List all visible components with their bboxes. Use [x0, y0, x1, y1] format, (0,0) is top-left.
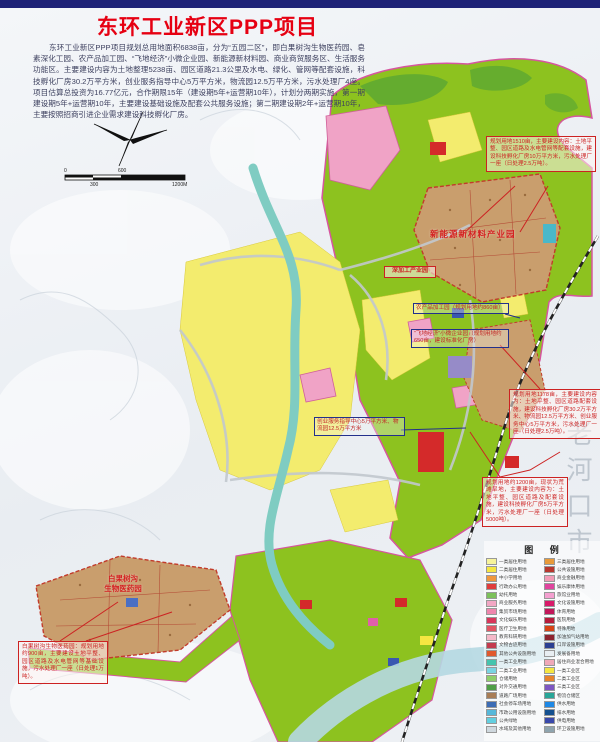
legend-item: 文化设施用地	[544, 600, 599, 607]
annotation-right-mid: 规划用地1178亩，主要建设内容为：土地平整、园区道路配套设施，建设科技孵化厂房…	[509, 389, 600, 439]
legend-item: 水域及其他用地	[486, 726, 541, 733]
legend-label: 三类工业区	[557, 684, 580, 690]
legend-label: 水域及其他用地	[499, 726, 531, 732]
legend-column-left: 一类居住用地二类居住用地中小学用地行政办公用地幼托用地商业服务用地集贸市场用地文…	[486, 558, 541, 733]
legend-swatch	[486, 659, 497, 666]
annotation-bottom-left: 白果树沟生物医药园：规划用地约900亩，主要建设土地平整、园区道路及水电管网等基…	[18, 641, 108, 684]
legend-swatch	[544, 558, 555, 565]
legend-swatch	[486, 667, 497, 674]
legend-item: 集贸市场用地	[486, 608, 541, 615]
legend-item: 排水用地	[544, 709, 599, 716]
label-processing-park: 深加工产业园	[384, 266, 436, 278]
label-new-material-park: 新能源新材料产业园	[430, 228, 550, 240]
legend-label: 二类居住用地	[499, 567, 527, 573]
scale-label-600: 600	[118, 168, 126, 174]
label-biopharma-line1: 白果树沟	[78, 574, 168, 584]
legend-swatch	[486, 608, 497, 615]
legend-swatch	[544, 642, 555, 649]
legend-swatch	[544, 692, 555, 699]
legend-label: 供电用地	[557, 718, 575, 724]
legend-label: 其他公共设施用地	[499, 651, 536, 657]
legend-label: 幼托用地	[499, 592, 517, 598]
legend-label: 一类工业区	[557, 668, 580, 674]
legend-label: 一类工业用地	[499, 659, 527, 665]
legend-item: 教育科研用地	[486, 634, 541, 641]
legend-label: 发展备用地	[557, 651, 580, 657]
legend-label: 加油加气站用地	[557, 634, 589, 640]
top-border-bar	[0, 0, 600, 8]
legend-swatch	[544, 592, 555, 599]
legend-swatch	[486, 726, 497, 733]
legend-swatch	[544, 566, 555, 573]
legend-label: 道路广场用地	[499, 693, 527, 699]
legend-label: 环卫设施用地	[557, 726, 585, 732]
legend-item: 商业服务用地	[486, 600, 541, 607]
legend-label: 商业金融用地	[557, 575, 585, 581]
legend-swatch	[486, 634, 497, 641]
label-biopharma-park: 白果树沟 生物医药园	[78, 574, 168, 594]
legend-swatch	[486, 701, 497, 708]
legend-swatch	[544, 709, 555, 716]
annotation-right-low: 规划用地约1200亩，现状为荒滩旱地，主要建设内容为：土地平整、园区道路及配套设…	[482, 477, 568, 527]
annotation-blue-service-center: 创业服务指导中心5万平方米、物流园12.5万平方米	[314, 417, 405, 436]
legend-label: 居住商业混合用地	[557, 659, 594, 665]
legend-label: 物流仓储区	[557, 693, 580, 699]
legend-label: 对外交通用地	[499, 684, 527, 690]
annotation-top-right: 规划用地1510亩，主要建设内容：土地平整、园区道路及水电管网等配套设施，建设科…	[486, 136, 596, 172]
legend-swatch	[486, 566, 497, 573]
legend-swatch	[486, 709, 497, 716]
legend-swatch	[486, 675, 497, 682]
legend-swatch	[544, 701, 555, 708]
label-biopharma-line2: 生物医药园	[78, 584, 168, 594]
legend-swatch	[544, 575, 555, 582]
scale-label-0: 0	[64, 168, 67, 174]
legend-item: 环卫设施用地	[544, 726, 599, 733]
legend-swatch	[544, 625, 555, 632]
legend-title: 图 例	[490, 543, 600, 556]
scale-label-300: 300	[90, 182, 98, 188]
legend-item: 一类工业区	[544, 667, 599, 674]
legend-swatch	[486, 625, 497, 632]
legend-item: 文化娱乐用地	[486, 617, 541, 624]
legend-label: 教育科研用地	[499, 634, 527, 640]
legend-label: 文物古迹用地	[499, 642, 527, 648]
legend-item: 道路广场用地	[486, 692, 541, 699]
legend-swatch	[486, 558, 497, 565]
legend-item: 公共绿地	[486, 717, 541, 724]
legend-item: 对外交通用地	[486, 684, 541, 691]
map-legend: 图 例 一类居住用地二类居住用地中小学用地行政办公用地幼托用地商业服务用地集贸市…	[484, 541, 600, 741]
scale-label-1200m: 1200M	[172, 182, 187, 188]
annotation-blue-sme-park: “飞地经济”小微企业园（规划用地约650亩，建设标准化厂房）	[411, 329, 509, 348]
legend-label: 二类工业区	[557, 676, 580, 682]
legend-label: 文化娱乐用地	[499, 617, 527, 623]
legend-item: 仓储用地	[486, 675, 541, 682]
map-page: 东环工业新区PPP项目 东环工业新区PPP项目规划总用地面积6838亩，分为“五…	[0, 0, 600, 742]
legend-swatch	[544, 608, 555, 615]
legend-swatch	[486, 684, 497, 691]
intro-paragraph: 东环工业新区PPP项目规划总用地面积6838亩，分为“五园二区”，即白果树沟生物…	[33, 42, 365, 121]
legend-columns: 一类居住用地二类居住用地中小学用地行政办公用地幼托用地商业服务用地集贸市场用地文…	[486, 558, 600, 733]
legend-label: 娱乐康体用地	[557, 584, 585, 590]
legend-item: 体育用地	[544, 608, 599, 615]
legend-label: 医疗卫生用地	[499, 626, 527, 632]
legend-item: 三类居住用地	[544, 558, 599, 565]
legend-swatch	[486, 600, 497, 607]
legend-item: 行政办公用地	[486, 583, 541, 590]
legend-swatch	[544, 684, 555, 691]
legend-item: 商业金融用地	[544, 575, 599, 582]
legend-item: 物流仓储区	[544, 692, 599, 699]
legend-item: 居住商业混合用地	[544, 659, 599, 666]
legend-swatch	[544, 583, 555, 590]
legend-item: 口岸设施用地	[544, 642, 599, 649]
legend-swatch	[486, 575, 497, 582]
legend-item: 加油加气站用地	[544, 634, 599, 641]
annotation-blue-agri-park: 农产品加工园（规划用地约860亩）	[413, 303, 509, 314]
legend-label: 体育用地	[557, 609, 575, 615]
legend-swatch	[486, 692, 497, 699]
legend-swatch	[544, 617, 555, 624]
legend-item: 娱乐康体用地	[544, 583, 599, 590]
legend-item: 医疗卫生用地	[486, 625, 541, 632]
legend-label: 集贸市场用地	[499, 609, 527, 615]
legend-item: 文物古迹用地	[486, 642, 541, 649]
legend-label: 社会停车场用地	[499, 701, 531, 707]
legend-item: 医院用地	[544, 617, 599, 624]
legend-label: 特殊用地	[557, 626, 575, 632]
legend-item: 二类居住用地	[486, 566, 541, 573]
legend-label: 文化设施用地	[557, 600, 585, 606]
legend-column-right: 三类居住用地公共设施用地商业金融用地娱乐康体用地旅馆业用地文化设施用地体育用地医…	[544, 558, 599, 733]
legend-label: 市政公用设施用地	[499, 710, 536, 716]
legend-label: 旅馆业用地	[557, 592, 580, 598]
legend-item: 一类居住用地	[486, 558, 541, 565]
legend-item: 一类工业用地	[486, 659, 541, 666]
legend-swatch	[544, 717, 555, 724]
legend-label: 二类工业用地	[499, 668, 527, 674]
legend-swatch	[486, 642, 497, 649]
legend-label: 商业服务用地	[499, 600, 527, 606]
legend-label: 公共设施用地	[557, 567, 585, 573]
legend-item: 二类工业用地	[486, 667, 541, 674]
legend-swatch	[544, 634, 555, 641]
scale-bar	[65, 175, 185, 180]
legend-item: 发展备用地	[544, 650, 599, 657]
legend-label: 仓储用地	[499, 676, 517, 682]
legend-label: 排水用地	[557, 710, 575, 716]
legend-item: 社会停车场用地	[486, 701, 541, 708]
legend-swatch	[544, 667, 555, 674]
legend-label: 口岸设施用地	[557, 642, 585, 648]
legend-item: 供电用地	[544, 717, 599, 724]
legend-item: 其他公共设施用地	[486, 650, 541, 657]
legend-item: 二类工业区	[544, 675, 599, 682]
legend-label: 中小学用地	[499, 575, 522, 581]
legend-swatch	[544, 726, 555, 733]
legend-swatch	[544, 600, 555, 607]
legend-item: 市政公用设施用地	[486, 709, 541, 716]
legend-swatch	[486, 717, 497, 724]
page-title: 东环工业新区PPP项目	[35, 11, 380, 41]
legend-label: 医院用地	[557, 617, 575, 623]
legend-label: 供水用地	[557, 701, 575, 707]
legend-swatch	[486, 617, 497, 624]
legend-swatch	[486, 583, 497, 590]
legend-label: 公共绿地	[499, 718, 517, 724]
legend-swatch	[486, 650, 497, 657]
legend-label: 行政办公用地	[499, 584, 527, 590]
legend-item: 特殊用地	[544, 625, 599, 632]
legend-label: 三类居住用地	[557, 559, 585, 565]
legend-swatch	[544, 659, 555, 666]
legend-item: 三类工业区	[544, 684, 599, 691]
legend-swatch	[544, 675, 555, 682]
legend-label: 一类居住用地	[499, 559, 527, 565]
legend-item: 中小学用地	[486, 575, 541, 582]
legend-item: 幼托用地	[486, 592, 541, 599]
legend-item: 公共设施用地	[544, 566, 599, 573]
legend-swatch	[486, 592, 497, 599]
legend-swatch	[544, 650, 555, 657]
legend-item: 旅馆业用地	[544, 592, 599, 599]
legend-item: 供水用地	[544, 701, 599, 708]
